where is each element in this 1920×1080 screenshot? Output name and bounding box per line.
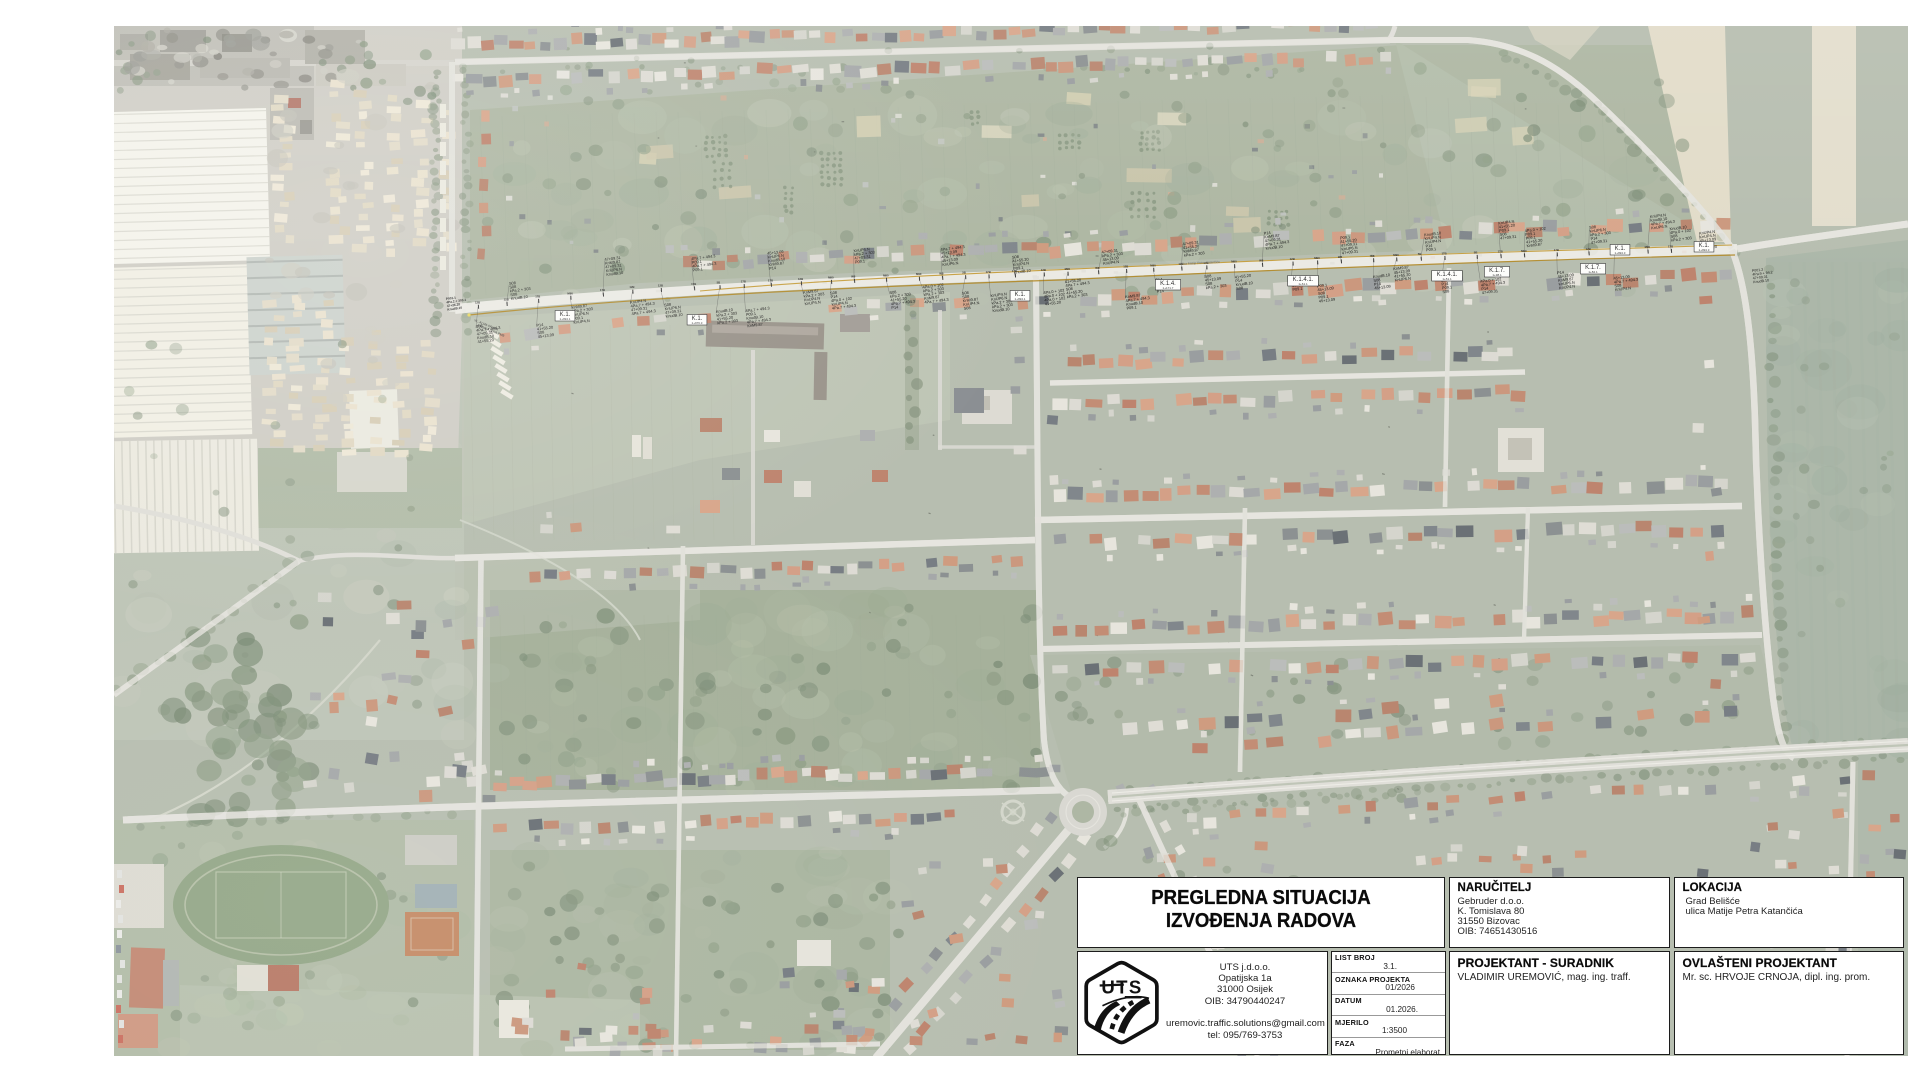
svg-text:UTS: UTS [1101,976,1142,997]
